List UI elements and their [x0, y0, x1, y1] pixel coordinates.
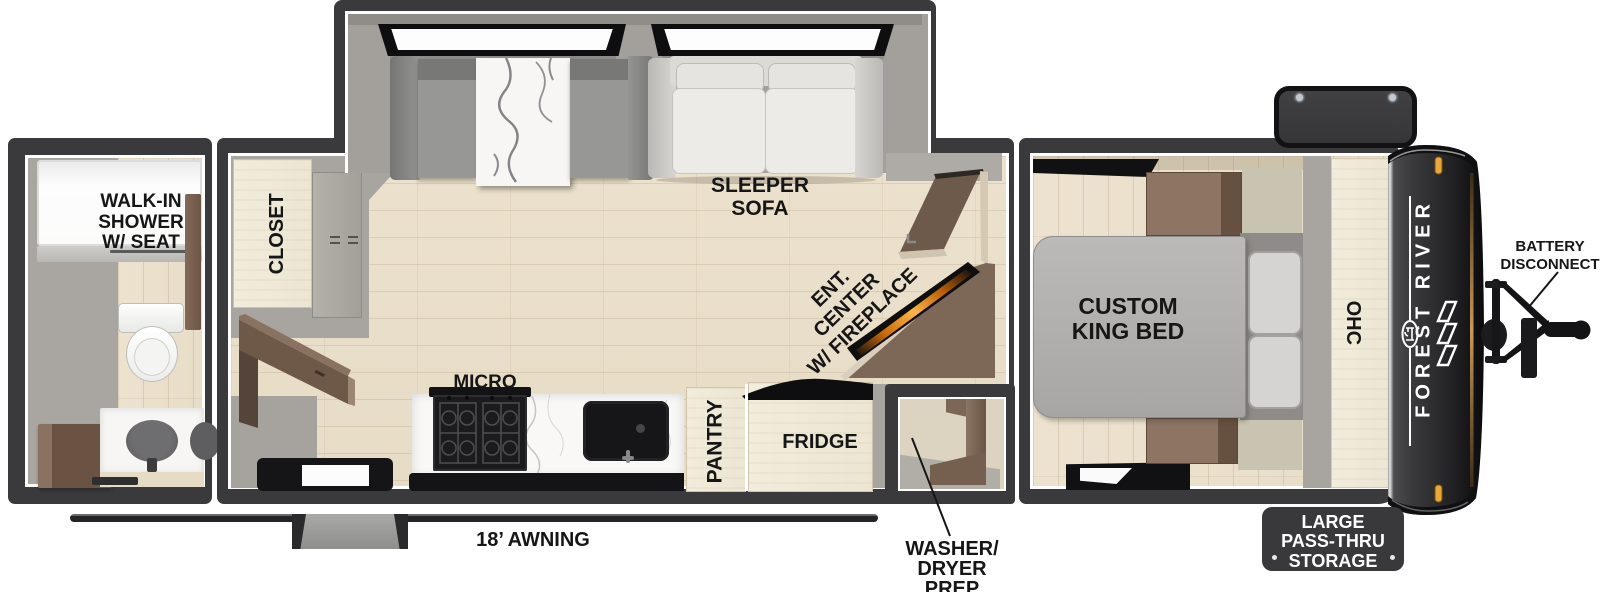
- svg-text:FOREST RIVER: FOREST RIVER: [1412, 198, 1434, 418]
